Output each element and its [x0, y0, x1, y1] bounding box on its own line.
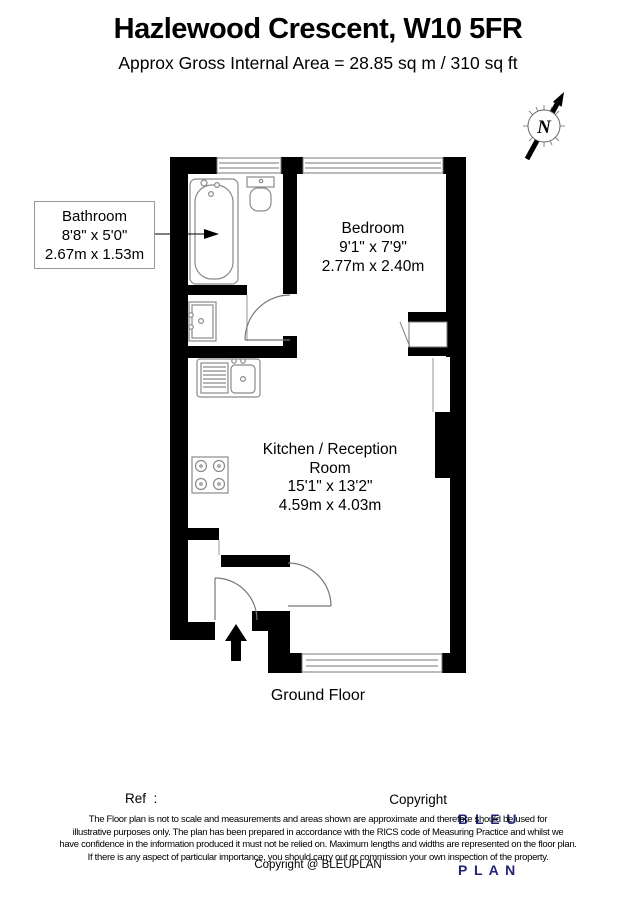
disclaimer-line: The Floor plan is not to scale and measu… [28, 814, 608, 827]
bedroom-name: Bedroom [273, 219, 473, 238]
kitchen-reception-label: Kitchen / Reception Room 15'1" x 13'2" 4… [230, 441, 430, 515]
kitchen-name-line2: Room [230, 460, 430, 479]
kitchen-dimensions-imperial: 15'1" x 13'2" [230, 478, 430, 497]
copyright-line: Copyright @ BLEUPLAN [0, 859, 636, 871]
bedroom-dimensions-metric: 2.77m x 2.40m [273, 257, 473, 276]
reception-window [302, 654, 442, 672]
compass-n-label: N [536, 117, 552, 138]
copyright-label: Copyright [355, 792, 447, 807]
bedroom-side-window [400, 322, 447, 347]
hob [192, 457, 228, 493]
page-title: Hazlewood Crescent, W10 5FR [0, 13, 636, 46]
disclaimer-line: have confidence in the information produ… [28, 839, 608, 852]
bathroom-dimensions-imperial: 8'8" x 5'0" [35, 226, 154, 245]
disclaimer-text: The Floor plan is not to scale and measu… [28, 814, 608, 865]
kitchen-name-line1: Kitchen / Reception [230, 441, 430, 460]
compass-icon: N [523, 92, 565, 159]
bathroom-dimensions-metric: 2.67m x 1.53m [35, 245, 154, 264]
bedroom-window [303, 158, 443, 173]
toilet [247, 177, 274, 211]
bedroom-dimensions-imperial: 9'1" x 7'9" [273, 238, 473, 257]
disclaimer-line: illustrative purposes only. The plan has… [28, 827, 608, 840]
bathtub [190, 179, 238, 284]
kitchen-sink [197, 359, 260, 397]
bathroom-label-box: Bathroom 8'8" x 5'0" 2.67m x 1.53m [34, 201, 155, 269]
basin [189, 302, 216, 341]
kitchen-dimensions-metric: 4.59m x 4.03m [230, 497, 430, 516]
bathroom-window [217, 158, 281, 173]
page-subtitle: Approx Gross Internal Area = 28.85 sq m … [0, 53, 636, 74]
hall-door [288, 563, 331, 606]
entry-arrow-icon [225, 624, 247, 661]
floor-name-label: Ground Floor [218, 687, 418, 705]
construction-lines [219, 295, 433, 555]
bathroom-name: Bathroom [35, 207, 154, 226]
bathroom-fixtures [189, 177, 274, 341]
front-door [215, 578, 257, 620]
bathroom-door [245, 295, 290, 340]
ref-label: Ref : [125, 791, 157, 806]
bedroom-label: Bedroom 9'1" x 7'9" 2.77m x 2.40m [273, 219, 473, 276]
